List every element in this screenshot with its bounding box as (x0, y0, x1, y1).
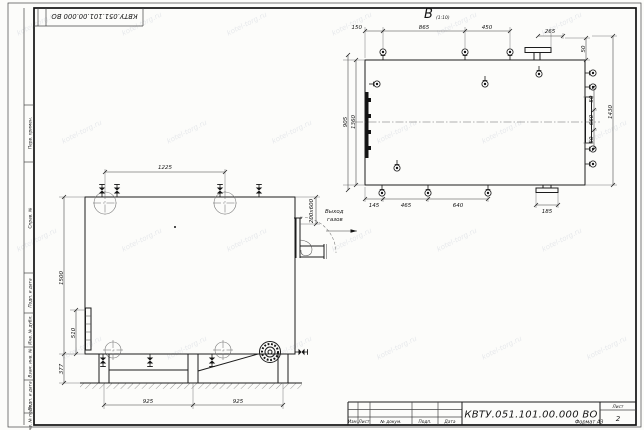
dim-front-span-left: 925 (143, 399, 154, 405)
dim-1360: 1360 (351, 115, 357, 129)
outlet-label-line2: газов (327, 217, 343, 223)
dim-660: 660 (589, 114, 595, 125)
dim-185: 185 (542, 209, 553, 215)
titleblock-col-izm: Изм. (348, 419, 358, 425)
dim-865: 865 (419, 25, 430, 31)
dim-front-span-right: 925 (233, 399, 244, 405)
frame-label-inv-podl: Инв. № подл. (28, 404, 34, 430)
dim-1430: 1430 (608, 105, 614, 119)
title-block: Изм. Лист № докум. Подп. Дата КВТУ.051.1… (348, 402, 636, 426)
front-dimensions: 1225 1500 510 377 925 (59, 165, 357, 409)
drawing-canvas: Перв. примен. Справ. № Подп. и дата Инв.… (0, 0, 644, 430)
frame-label-perv-primen: Перв. примен. (28, 117, 34, 149)
dim-front-gauge: 510 (71, 327, 77, 338)
dim-front-height: 1500 (59, 271, 65, 285)
view-label: В (424, 7, 433, 22)
titleblock-sheet-number: 2 (616, 415, 621, 423)
bolted-flange (260, 342, 281, 363)
dim-outlet-size: 200х600 (309, 198, 315, 223)
bottom-flange (536, 185, 558, 193)
dim-front-top-width: 1225 (158, 165, 172, 171)
dim-450: 450 (482, 25, 493, 31)
outlet-label-line1: Выход (325, 209, 344, 215)
dim-145: 145 (369, 203, 380, 209)
top-flange (525, 48, 551, 61)
dim-50-top: 50 (581, 45, 587, 52)
titleblock-col-doc: № докум. (379, 419, 401, 425)
frame-label-podp-data-1: Подп. и дата (28, 278, 34, 308)
dim-150: 150 (352, 25, 363, 31)
view-scale: (1:10) (436, 15, 450, 21)
frame-label-inv-dubl: Инв. № дубл. (28, 315, 34, 344)
dim-50-a: 50 (589, 95, 595, 102)
ground-line (80, 383, 302, 389)
titleblock-sheet-label: Лист (612, 404, 624, 410)
top-view-valves (369, 49, 596, 196)
drawing-sheet: kotel-torg.rukotel-torg.rukotel-torg.ruk… (0, 0, 644, 430)
format-label: Формат А3 (575, 420, 603, 426)
dim-465: 465 (401, 203, 412, 209)
gas-flow-arrow (351, 229, 358, 232)
top-view: В (1:10) (343, 7, 617, 215)
legs (99, 354, 288, 383)
dim-640: 640 (453, 203, 464, 209)
gas-outlet (294, 217, 336, 259)
top-stamp-doc-number: КВТУ.051.101.00.000 ВО (51, 12, 138, 20)
dim-905: 905 (343, 116, 349, 127)
titleblock-col-podp: Подп. (418, 419, 431, 425)
front-view: 1225 1500 510 377 925 (59, 165, 357, 409)
front-valves (99, 185, 308, 367)
dim-265: 265 (545, 29, 556, 35)
dim-front-legs: 377 (59, 363, 65, 374)
level-gauge (86, 308, 92, 350)
dim-50-b: 50 (589, 136, 595, 143)
titleblock-col-data: Дата (443, 419, 455, 425)
frame-label-vzam-inv: Взам. инв. № (28, 348, 34, 378)
titleblock-col-list: Лист (358, 419, 370, 425)
frame-label-sprav-no: Справ. № (28, 207, 34, 228)
top-stamp: КВТУ.051.101.00.000 ВО (34, 8, 143, 26)
